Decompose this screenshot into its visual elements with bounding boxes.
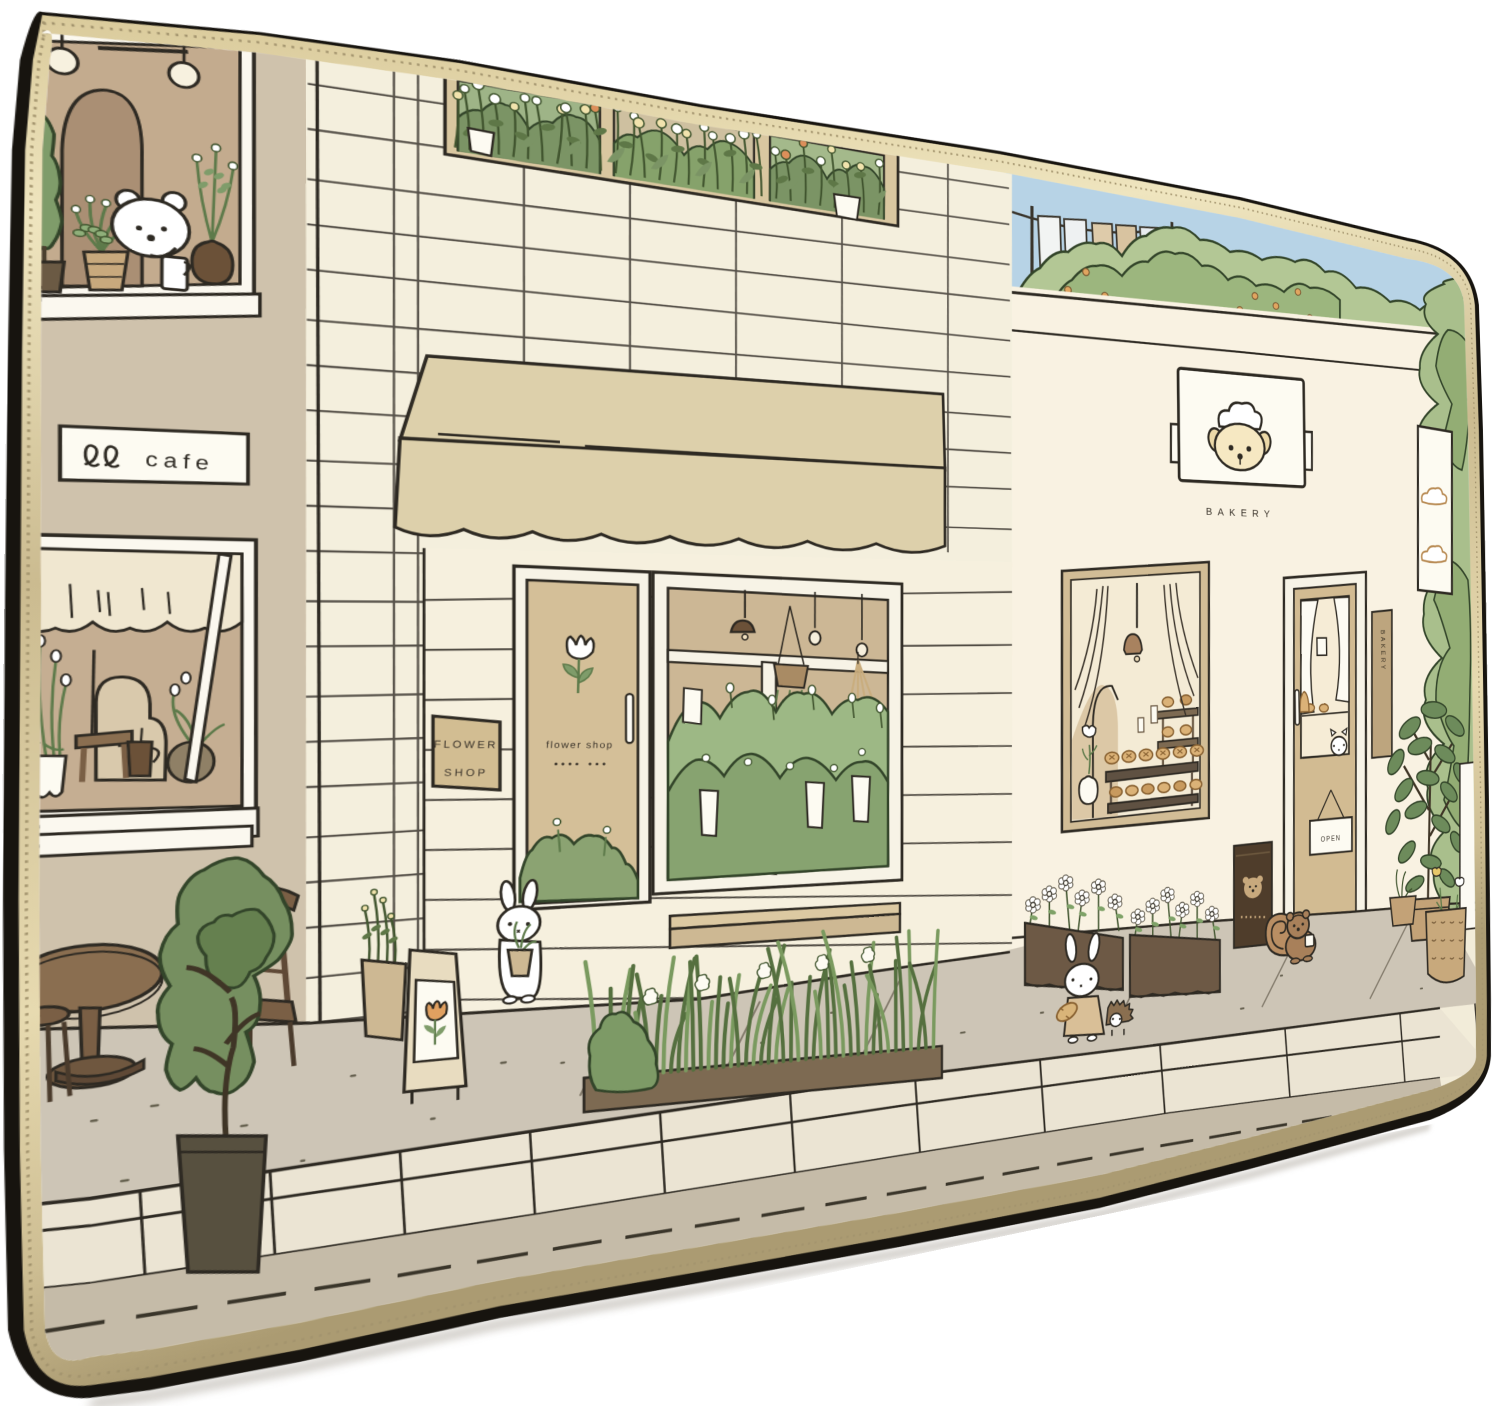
svg-text:FLOWER: FLOWER: [433, 738, 498, 751]
svg-text:cafe: cafe: [145, 448, 215, 475]
svg-text:SHOP: SHOP: [444, 766, 489, 778]
svg-text:BAKERY: BAKERY: [1206, 505, 1275, 520]
svg-text:BAKERY: BAKERY: [1379, 630, 1385, 672]
svg-text:flower shop: flower shop: [546, 739, 614, 750]
